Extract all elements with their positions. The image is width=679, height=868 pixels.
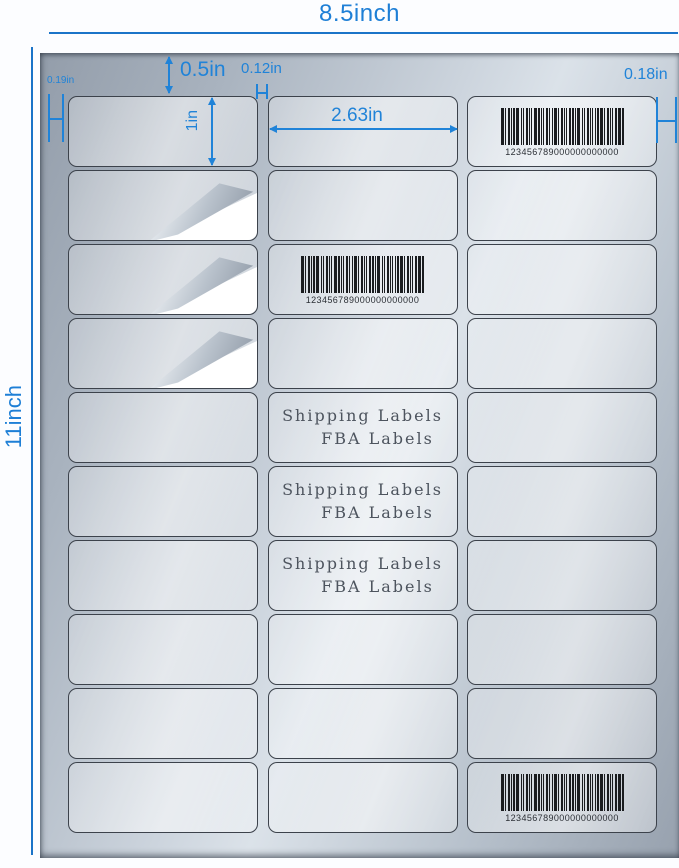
- label-height-dimension: 1in: [184, 110, 202, 131]
- fba-labels-text: FBA Labels: [284, 576, 458, 598]
- label-cell: [467, 688, 657, 759]
- label-grid: 1234567890000000000001234567890000000000…: [68, 96, 657, 833]
- label-cell: [268, 614, 458, 685]
- label-cell: [268, 170, 458, 241]
- label-cell-peel: [68, 318, 258, 389]
- label-cell: [268, 318, 458, 389]
- label-cell: [467, 392, 657, 463]
- label-cell: [68, 466, 258, 537]
- label-cell-text: Shipping LabelsFBA Labels: [268, 540, 458, 611]
- right-margin-bracket: [656, 97, 677, 143]
- label-cell: [467, 540, 657, 611]
- label-cell: [68, 688, 258, 759]
- height-dimension-line: [31, 47, 33, 855]
- label-cell: [467, 318, 657, 389]
- label-cell: [68, 614, 258, 685]
- label-cell: [467, 244, 657, 315]
- label-cell: [467, 614, 657, 685]
- sheet-width-dimension: 8.5inch: [40, 0, 679, 28]
- top-margin-dimension: 0.5in: [180, 58, 226, 82]
- shipping-labels-text: Shipping Labels: [269, 553, 457, 575]
- column-gap-dimension: 0.12in: [241, 60, 282, 77]
- fba-labels-text: FBA Labels: [284, 428, 458, 450]
- column-gap-bracket: [256, 84, 268, 99]
- left-margin-dimension: 0.19in: [47, 75, 74, 86]
- label-cell: [268, 762, 458, 833]
- label-cell: [68, 392, 258, 463]
- label-cell: [467, 466, 657, 537]
- barcode-icon: [301, 256, 424, 293]
- label-cell: [68, 540, 258, 611]
- label-cell: [68, 96, 258, 167]
- fba-labels-text: FBA Labels: [284, 502, 458, 524]
- label-cell-peel: [68, 244, 258, 315]
- shipping-labels-text: Shipping Labels: [269, 479, 457, 501]
- label-cell-barcode: 123456789000000000000: [467, 762, 657, 833]
- top-margin-arrow: [168, 57, 170, 93]
- label-cell-barcode: 123456789000000000000: [268, 244, 458, 315]
- label-height-arrow: [211, 98, 213, 165]
- label-cell: [467, 170, 657, 241]
- sheet-height-dimension: 11inch: [1, 385, 27, 448]
- right-margin-dimension: 0.18in: [624, 66, 668, 84]
- barcode-icon: [501, 774, 624, 811]
- label-cell: [68, 762, 258, 833]
- left-margin-bracket: [48, 94, 64, 142]
- barcode-number: 123456789000000000000: [505, 147, 619, 157]
- barcode-icon: [501, 108, 624, 145]
- label-cell-text: Shipping LabelsFBA Labels: [268, 392, 458, 463]
- label-cell-text: Shipping LabelsFBA Labels: [268, 466, 458, 537]
- label-width-dimension: 2.63in: [292, 105, 422, 127]
- barcode-number: 123456789000000000000: [505, 813, 619, 823]
- shipping-labels-text: Shipping Labels: [269, 405, 457, 427]
- label-cell: [268, 688, 458, 759]
- label-sheet-diagram: 8.5inch 11inch 1234567890000000000001234…: [0, 0, 679, 868]
- barcode-number: 123456789000000000000: [306, 295, 420, 305]
- label-cell-barcode: 123456789000000000000: [467, 96, 657, 167]
- label-width-arrow: [270, 128, 457, 130]
- label-cell-peel: [68, 170, 258, 241]
- width-dimension-line: [49, 32, 678, 34]
